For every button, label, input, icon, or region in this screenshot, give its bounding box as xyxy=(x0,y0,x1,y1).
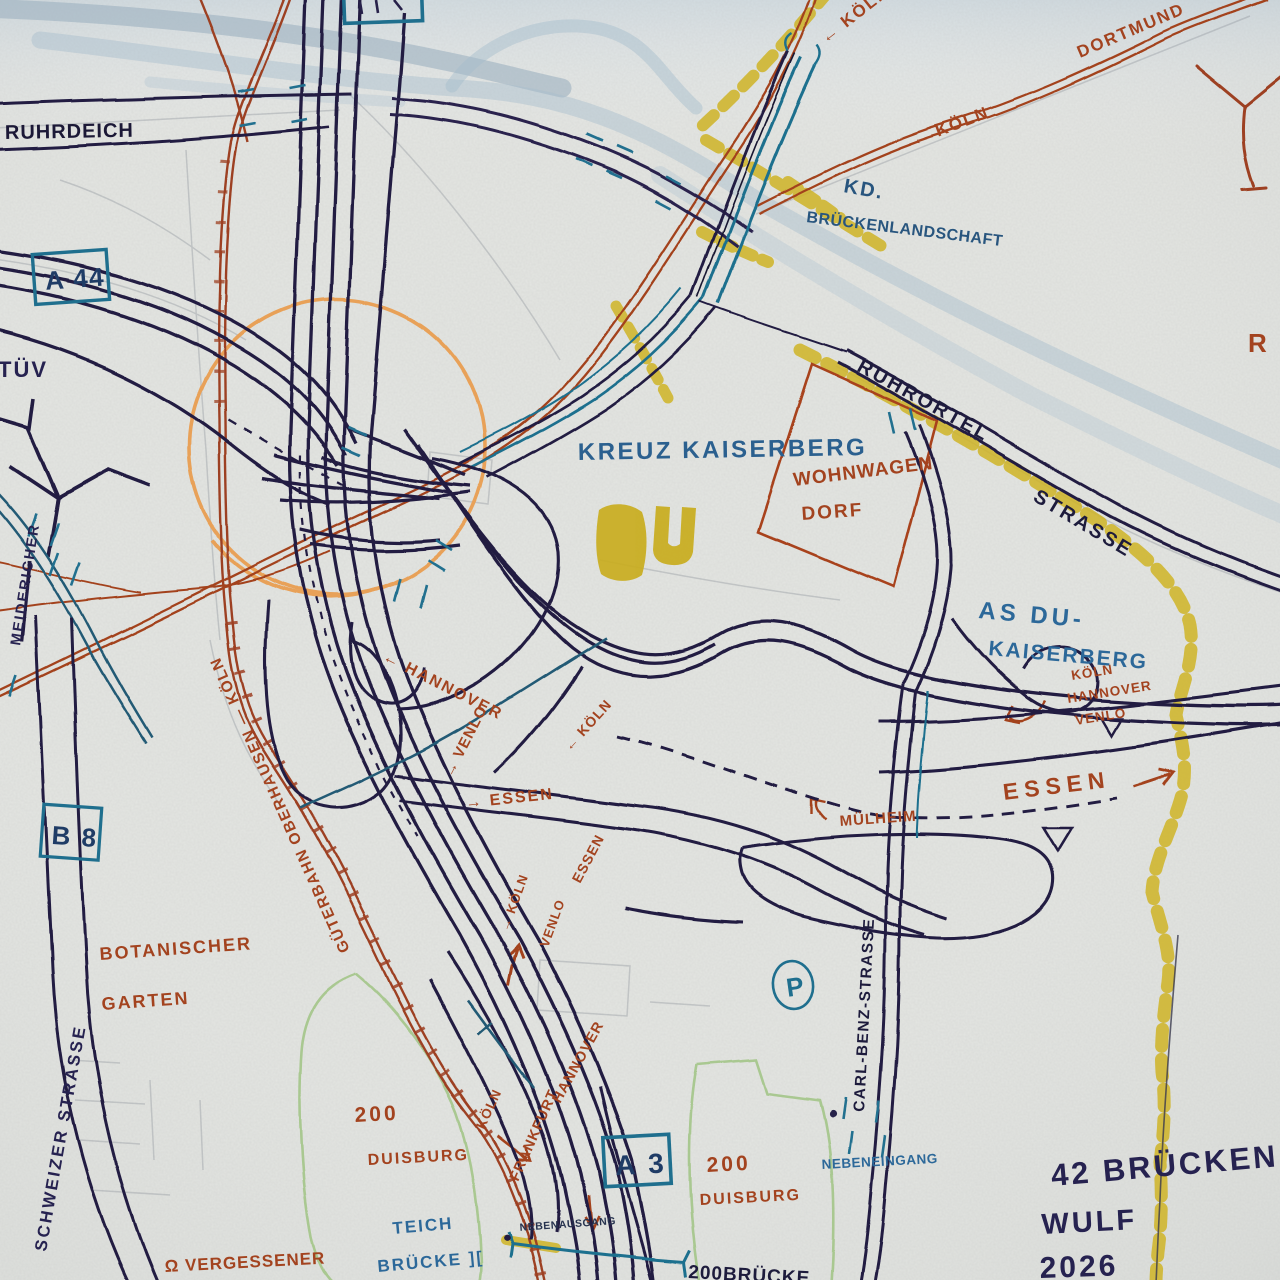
svg-text:KREUZ KAISERBERG: KREUZ KAISERBERG xyxy=(578,434,868,466)
svg-text:A 3: A 3 xyxy=(614,1147,667,1181)
svg-text:2026: 2026 xyxy=(1039,1249,1119,1280)
svg-text:B 8: B 8 xyxy=(51,820,99,853)
svg-text:RUHRDEICH: RUHRDEICH xyxy=(5,120,134,144)
svg-text:200: 200 xyxy=(706,1152,751,1177)
svg-text:200: 200 xyxy=(354,1102,399,1127)
svg-text:A 44: A 44 xyxy=(44,262,106,296)
svg-text:R: R xyxy=(1248,328,1267,358)
svg-text:TÜV: TÜV xyxy=(0,357,48,382)
svg-text:WULF: WULF xyxy=(1041,1204,1138,1241)
svg-text:DORF: DORF xyxy=(801,500,864,525)
